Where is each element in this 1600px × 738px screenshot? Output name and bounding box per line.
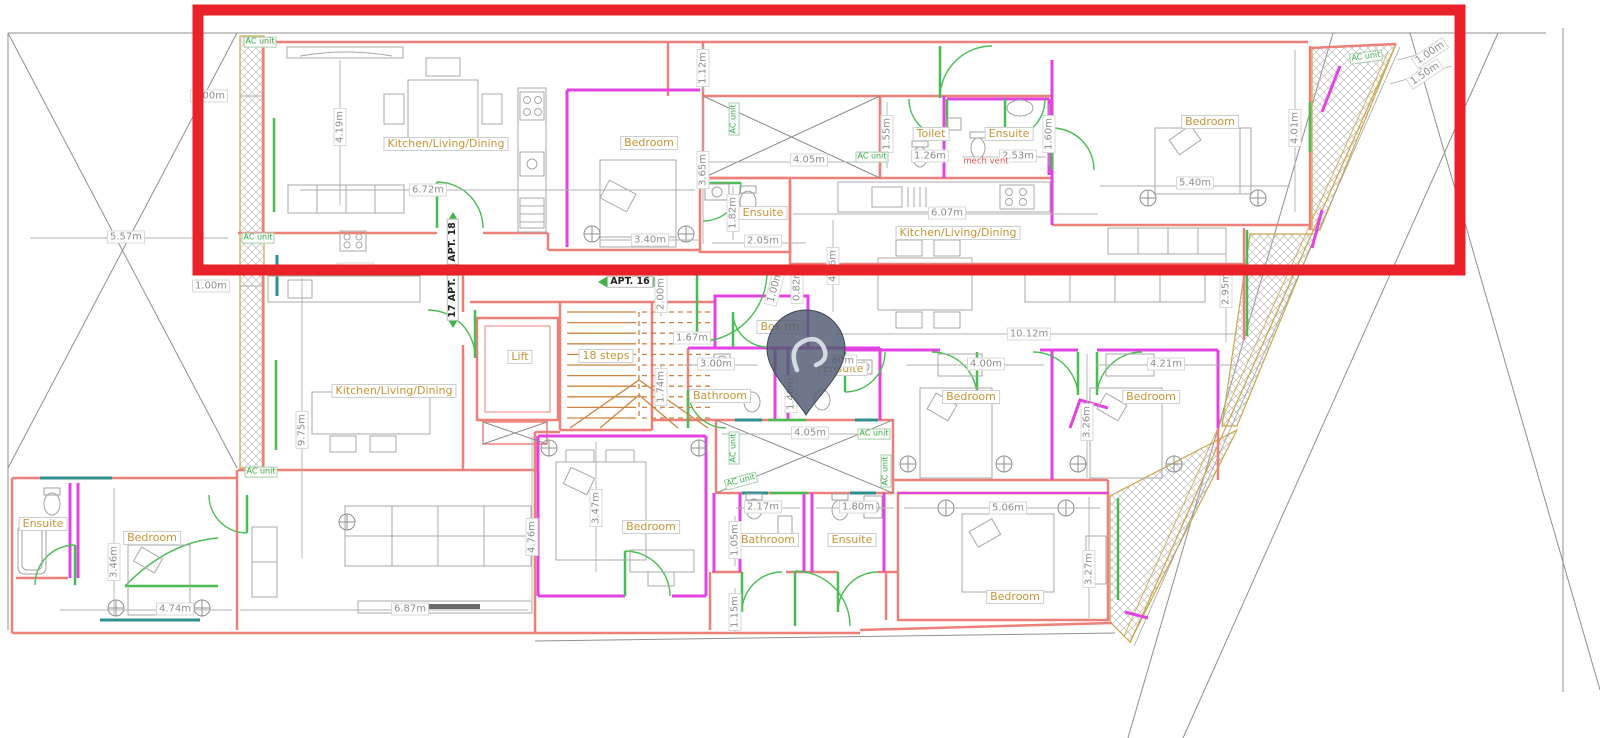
room-label: Bedroom (123, 531, 181, 545)
dimension-label: 3.65m (697, 151, 710, 189)
location-pin[interactable] (767, 310, 845, 415)
dimension-label: 3.26m (1081, 403, 1094, 441)
ac-unit-label: AC unit (724, 472, 759, 491)
room-label: Ensuite (828, 533, 877, 547)
floor-plan-canvas: Kitchen/Living/DiningBedroomEnsuiteToile… (0, 0, 1600, 738)
dimension-label: 6.07m (928, 207, 966, 220)
dimension-label: 3.47m (590, 489, 603, 527)
room-label: Kitchen/Living/Dining (332, 384, 457, 398)
door-swings (35, 46, 1142, 626)
dimension-label: 4.76m (526, 518, 539, 556)
dimension-label: 4.19m (334, 108, 347, 146)
furniture (128, 47, 1251, 615)
dimension-label: 1.00m (190, 90, 228, 103)
dimension-label: 1.67m (673, 332, 711, 345)
dimension-label: 6.87m (391, 603, 429, 616)
room-label: Bedroom (942, 390, 1000, 404)
shaft-cross-lines (483, 96, 893, 493)
ac-unit-label: AC unit (856, 152, 889, 163)
room-label: Toilet (913, 127, 950, 141)
dimension-label: 4.00m (967, 358, 1005, 371)
apartment-tag: APT. 18 (447, 219, 459, 265)
dimension-label: 1.60m (1043, 115, 1056, 153)
dimension-label: 1.00m (1411, 37, 1450, 69)
dimension-label: 4.06m (827, 247, 840, 285)
dimension-lines (30, 46, 1452, 634)
apartment-tag: 17 APT. (447, 275, 459, 321)
room-label: Bedroom (620, 136, 678, 150)
red-walls (12, 42, 1396, 633)
spotlight-symbols (108, 190, 1266, 616)
dimension-label: 3.40m (631, 234, 669, 247)
room-label: Bedroom (986, 590, 1044, 604)
dimension-label: 2.95m (1220, 270, 1233, 308)
dimension-label: 1.55m (881, 115, 894, 153)
room-label: Bathroom (737, 533, 799, 547)
dimension-label: 2.00m (655, 275, 668, 313)
dimension-label: 6.72m (409, 184, 447, 197)
dimension-label: 1.26m (911, 150, 949, 163)
dimension-label: 3.00m (697, 358, 735, 371)
ac-unit-label: AC unit (242, 233, 275, 244)
ac-unit-label: AC unit (1349, 49, 1383, 64)
room-label: Bedroom (622, 520, 680, 534)
room-label: 18 steps (578, 349, 633, 363)
dimension-label: 3.46m (108, 543, 121, 581)
dimension-label: 1.15m (729, 593, 742, 631)
dimension-label: 3.27m (1083, 550, 1096, 588)
dimension-label: 4.21m (1147, 358, 1185, 371)
dimension-label: 1.74m (655, 368, 668, 406)
apartment-tag-arrows (447, 212, 662, 328)
dimension-label: 1.05m (729, 521, 742, 559)
room-label: Bedroom (1181, 115, 1239, 129)
ac-unit-label: AC unit (881, 455, 892, 488)
dimension-label: 1.50m (1406, 58, 1445, 90)
dimension-label: 1.80m (839, 501, 877, 514)
stairs (567, 312, 710, 428)
magenta-walls (70, 60, 1340, 618)
bathroom-fixtures (18, 100, 1033, 574)
dimension-label: 4.05m (790, 154, 828, 167)
window-teal-segments (40, 255, 878, 620)
dimension-label: 1.12m (697, 49, 710, 87)
dimension-label: 2.17m (744, 501, 782, 514)
dimension-label: 4.74m (156, 603, 194, 616)
ac-unit-label: AC unit (858, 429, 891, 440)
dimension-label: 5.57m (107, 231, 145, 244)
overlay-layer (0, 0, 1600, 738)
dimension-label: 9.75m (296, 411, 309, 449)
ac-unit-label: AC unit (245, 467, 278, 478)
room-label: Kitchen/Living/Dining (896, 226, 1021, 240)
room-label: Lift (507, 350, 532, 364)
ac-unit-label: AC unit (729, 103, 740, 136)
apartment-tag: APT. 16 (607, 276, 653, 288)
dimension-label: 2.05m (744, 235, 782, 248)
dimension-label: 10.12m (1007, 328, 1051, 341)
dimension-label: 5.06m (989, 502, 1027, 515)
annotation-label: mech vent (962, 157, 1009, 166)
dimension-label: 4.05m (791, 427, 829, 440)
room-label: Kitchen/Living/Dining (384, 137, 509, 151)
dimension-label: 1.82m (727, 194, 740, 232)
ac-unit-label: AC unit (729, 432, 740, 465)
dimension-label: 2.53m (999, 150, 1037, 163)
room-label: Bathroom (689, 389, 751, 403)
room-label: Ensuite (19, 517, 68, 531)
room-label: Ensuite (739, 206, 788, 220)
dimension-label: 0.82m (791, 266, 804, 304)
room-label: Ensuite (985, 127, 1034, 141)
dimension-label: 3.28m (336, 263, 374, 276)
ac-unit-label: AC unit (244, 37, 277, 48)
dimension-label: 1.00m (192, 280, 230, 293)
highlight-rectangle (198, 10, 1460, 270)
dimension-label: 4.01m (1289, 109, 1302, 147)
dimension-label: 1.00m (764, 267, 786, 307)
room-label: Bedroom (1122, 390, 1180, 404)
dimension-label: 5.40m (1176, 177, 1214, 190)
